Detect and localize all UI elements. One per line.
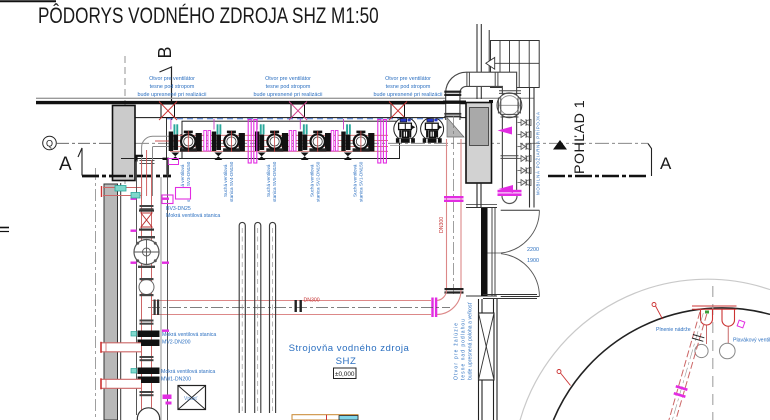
svg-text:Otvor pre ventilátor: Otvor pre ventilátor — [265, 76, 311, 82]
svg-text:Mokrá ventilová stanica: Mokrá ventilová stanica — [162, 332, 216, 338]
svg-text:1900: 1900 — [527, 258, 539, 264]
svg-text:MOBILNÁ POŽIARNA PRÍPOJKA: MOBILNÁ POŽIARNA PRÍPOJKA — [536, 111, 541, 195]
svg-text:Suchá ventilová: Suchá ventilová — [309, 164, 314, 197]
svg-text:DN300: DN300 — [304, 298, 320, 304]
svg-text:stanica SV4-DN150: stanica SV4-DN150 — [229, 161, 234, 202]
svg-text:Suchá ventilová: Suchá ventilová — [266, 164, 271, 197]
svg-text:Otvor pre ventilátor: Otvor pre ventilátor — [385, 76, 431, 82]
svg-text:bude upresnené pri realizácii: bude upresnené pri realizácii — [138, 92, 207, 98]
svg-text:A: A — [660, 154, 672, 173]
svg-text:Q: Q — [46, 138, 53, 148]
svg-text:stanica SV5-DN150: stanica SV5-DN150 — [272, 161, 277, 202]
svg-text:Plnenie nádrže: Plnenie nádrže — [656, 327, 691, 333]
svg-text:Suchá ventilová: Suchá ventilová — [353, 164, 358, 197]
svg-text:tesne pod stropom: tesne pod stropom — [386, 84, 431, 90]
svg-text:stanica SV1-DN150: stanica SV1-DN150 — [359, 161, 364, 202]
svg-text:2200: 2200 — [527, 247, 539, 253]
svg-text:bude upresnené pri realizácii: bude upresnené pri realizácii — [374, 92, 443, 98]
svg-text:MW1-DN200: MW1-DN200 — [161, 377, 191, 383]
svg-text:BV3-DN25: BV3-DN25 — [166, 206, 191, 212]
svg-text:stanica SV2-DN150: stanica SV2-DN150 — [315, 161, 320, 202]
svg-text:PÔDORYS VODNÉHO ZDROJA SHZ M1:: PÔDORYS VODNÉHO ZDROJA SHZ M1:50 — [38, 3, 379, 29]
svg-text:Mokrá ventilová stanica: Mokrá ventilová stanica — [166, 213, 220, 219]
svg-text:Otvor pre ventilátor: Otvor pre ventilátor — [149, 76, 195, 82]
svg-text:A: A — [59, 154, 72, 175]
svg-text:±0,000: ±0,000 — [335, 371, 355, 378]
svg-text:Plavákový ventil: Plavákový ventil — [733, 338, 770, 344]
svg-text:Mokrá ventilová stanica: Mokrá ventilová stanica — [161, 369, 215, 375]
svg-text:Suchá ventilová: Suchá ventilová — [223, 164, 228, 197]
svg-text:POHĽAD 1: POHĽAD 1 — [572, 100, 588, 174]
svg-text:bude upresnená poloha a veľkos: bude upresnená poloha a veľkosť — [468, 302, 474, 380]
svg-text:Strojovňa vodného zdroja: Strojovňa vodného zdroja — [289, 343, 410, 354]
svg-text:tesne nad podlahou: tesne nad podlahou — [461, 318, 467, 380]
svg-text:Vpusť: Vpusť — [184, 396, 197, 402]
svg-text:DN300: DN300 — [439, 217, 445, 233]
svg-text:bude upresnené pri realizácii: bude upresnené pri realizácii — [254, 92, 323, 98]
svg-text:MV2-DN200: MV2-DN200 — [162, 340, 191, 346]
svg-text:tesne pod stropom: tesne pod stropom — [266, 84, 311, 90]
svg-text:Otvor pre žalúzie: Otvor pre žalúzie — [454, 322, 460, 380]
svg-text:B: B — [155, 46, 175, 58]
svg-text:SHZ: SHZ — [336, 356, 357, 367]
svg-text:tesne pod stropom: tesne pod stropom — [150, 84, 195, 90]
